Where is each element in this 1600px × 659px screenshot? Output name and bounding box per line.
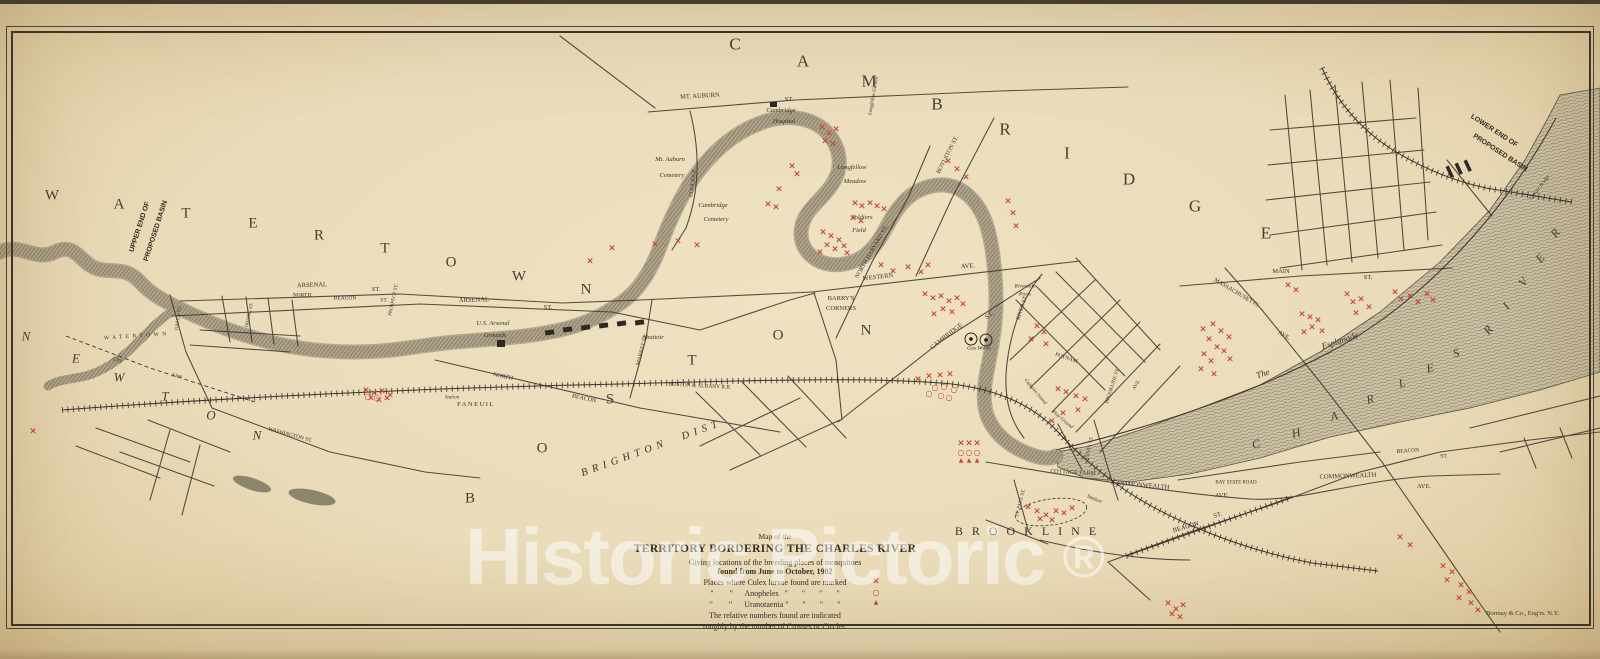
marker-cross: × — [1443, 577, 1451, 586]
legend-line-relative: The relative numbers found are indicated — [595, 611, 955, 620]
marker-cross: × — [829, 141, 837, 150]
legend-line-dates: found from June to October, 1902 — [595, 567, 955, 576]
marker-cross: × — [1308, 324, 1316, 333]
map-label: BOSTON & ALBANY R.R. — [668, 383, 731, 392]
marker-cross: × — [832, 126, 840, 135]
marker-cross: × — [944, 158, 952, 167]
map-label: AVE. — [1215, 493, 1229, 500]
district-letter: G — [1189, 198, 1201, 215]
marker-cross: × — [821, 138, 829, 147]
district-letter: E — [1425, 361, 1435, 374]
district-letter: H — [1290, 426, 1301, 440]
marker-cross: × — [1176, 614, 1184, 623]
legend-map-of-the: Map of the — [595, 533, 955, 542]
marker-cross: × — [383, 395, 391, 404]
district-letter: O — [773, 329, 784, 344]
map-label: Esplanade — [1321, 331, 1360, 351]
map-label: City — [112, 357, 122, 364]
marker-cross: × — [1209, 321, 1217, 330]
district-letter: O — [206, 409, 215, 422]
district-letter: T — [161, 390, 168, 403]
marker-cross: × — [1349, 299, 1357, 308]
map-label: AVE. — [961, 263, 976, 271]
marker-cross: × — [1004, 198, 1012, 207]
district-letter: I — [1064, 145, 1070, 162]
map-label: COMMONWEALTH — [1319, 473, 1376, 481]
historic-map-page: MT. AUBURNST.CambridgeHospitalMt. Auburn… — [0, 0, 1600, 659]
legend-line-anopheles: " " Anopheles " " " " — [595, 589, 955, 598]
district-letter: E — [1533, 251, 1547, 264]
marker-cross: × — [1074, 407, 1082, 416]
marker-cross: × — [1068, 505, 1076, 514]
district-letter: T — [181, 207, 190, 222]
marker-cross: × — [946, 371, 954, 380]
marker-cross: × — [1042, 341, 1050, 350]
marker-cross: × — [877, 262, 885, 271]
marker-cross: × — [936, 372, 944, 381]
marker-cross: × — [1060, 510, 1068, 519]
marker-circle: ○ — [958, 449, 965, 457]
map-label: Grounds — [484, 333, 507, 340]
map-label: Gas Works — [967, 346, 991, 352]
map-label: COMMONWEALTH — [1112, 480, 1169, 491]
district-letter: C — [729, 36, 740, 53]
map-label: BEACON — [571, 394, 596, 405]
marker-cross: × — [937, 293, 945, 302]
marker-cross: × — [819, 229, 827, 238]
marker-cross: × — [1179, 602, 1187, 611]
marker-cross: × — [823, 242, 831, 251]
marker-cross: × — [586, 258, 594, 267]
marker-cross: × — [775, 186, 783, 195]
marker-cross: × — [1352, 310, 1360, 319]
marker-cross: × — [1406, 293, 1414, 302]
map-label: ST. — [785, 97, 794, 104]
marker-cross: × — [925, 373, 933, 382]
district-letter: T — [380, 242, 389, 257]
map-label: Captains Island — [1023, 378, 1047, 406]
marker-cross: × — [953, 166, 961, 175]
marker-cross: × — [921, 291, 929, 300]
district-letter: M — [861, 73, 876, 90]
map-label: BAY STATE ROAD — [1215, 481, 1256, 486]
engraver-credit: Bormay & Co., Eng'rs. N.Y. — [1486, 610, 1559, 617]
district-letter: W — [512, 270, 526, 285]
map-label: The — [1255, 368, 1271, 381]
map-label: BEACON — [1397, 448, 1420, 455]
map-label: ST. — [544, 305, 553, 312]
map-label: Mt. Auburn — [655, 157, 685, 164]
district-letter: N — [581, 283, 592, 298]
map-label: Abattoir — [642, 335, 664, 342]
map-label: MT. AUBURN — [680, 93, 720, 102]
legend-circle-marker: ○ — [873, 589, 880, 597]
marker-cross: × — [1474, 607, 1482, 616]
map-label: MAIN — [1272, 269, 1289, 276]
marker-cross: × — [1292, 287, 1300, 296]
marker-cross: × — [1197, 366, 1205, 375]
district-letter: R — [999, 121, 1010, 138]
marker-cross: × — [1318, 328, 1326, 337]
map-label: LOWER END OF — [1469, 113, 1518, 149]
legend-line-roughly: roughly by the number of Crosses or Circ… — [595, 622, 955, 631]
marker-cross: × — [1199, 326, 1207, 335]
map-label: ARSENAL — [459, 297, 489, 305]
map-label: ST. — [1213, 512, 1223, 521]
map-label: Line — [172, 373, 183, 380]
marker-cross: × — [1397, 296, 1405, 305]
district-letter: O — [446, 256, 457, 271]
district-letter: I — [1500, 301, 1512, 312]
marker-cross: × — [764, 201, 772, 210]
map-label: BROOKLINE — [955, 525, 1105, 537]
map-label: Longfellow — [837, 165, 866, 172]
marker-cross: × — [880, 206, 888, 215]
district-letter: B — [931, 96, 942, 113]
marker-cross: × — [1298, 311, 1306, 320]
map-label: AVE. — [1132, 379, 1142, 391]
marker-cross: × — [1210, 371, 1218, 380]
legend-line-giving: Giving locations of the breeding places … — [595, 558, 955, 567]
marker-cross: × — [939, 306, 947, 315]
map-label: Hospital — [773, 119, 795, 126]
marker-cross: × — [1207, 358, 1215, 367]
marker-cross: × — [1048, 418, 1056, 427]
marker-cross: × — [1012, 223, 1020, 232]
map-label: Press — [1019, 292, 1031, 298]
marker-cross: × — [1406, 542, 1414, 551]
district-letter: R — [314, 229, 324, 244]
district-letter: S — [1452, 346, 1461, 359]
map-label: BEACON — [334, 296, 357, 302]
marker-cross: × — [930, 311, 938, 320]
map-label: RIVER ST. — [1016, 295, 1029, 321]
marker-cross: × — [849, 215, 857, 224]
map-label: ESSEX ST. — [1085, 436, 1095, 460]
marker-cross: × — [1205, 336, 1213, 345]
marker-cross: × — [1225, 334, 1233, 343]
marker-cross: × — [1300, 329, 1308, 338]
map-label: MASSACHUSETTS — [1213, 277, 1260, 308]
marker-cross: × — [608, 245, 616, 254]
marker-cross: × — [831, 246, 839, 255]
map-label: ST. — [985, 311, 996, 321]
map-label: NORTH — [293, 293, 312, 299]
marker-cross: × — [772, 204, 780, 213]
marker-circle: ○ — [941, 383, 948, 391]
map-label: CAMBRIDGE — [930, 322, 965, 351]
marker-cross: × — [1024, 504, 1032, 513]
map-label: Cambridge — [698, 203, 727, 210]
scan-top-edge — [0, 0, 1600, 4]
marker-cross: × — [1414, 299, 1422, 308]
map-label: ST. — [380, 298, 387, 304]
district-letter: W — [45, 189, 59, 204]
marker-cross: × — [693, 242, 701, 251]
legend-line-uranotaenia: " " Uranotaenia " " " " — [595, 600, 955, 609]
map-label: WASHINGTON ST. — [267, 427, 312, 444]
marker-triangle: ▲ — [967, 458, 972, 464]
map-label: BRIGHTON DIST — [580, 419, 724, 480]
district-letter: R — [1365, 392, 1375, 405]
map-label: Station — [445, 396, 459, 401]
marker-cross: × — [793, 171, 801, 180]
marker-cross: × — [1455, 595, 1463, 604]
scan-bottom-edge — [0, 649, 1600, 659]
map-label: AVE. — [1277, 330, 1291, 342]
marker-circle: ○ — [974, 449, 981, 457]
marker-cross: × — [651, 241, 659, 250]
marker-circle: ○ — [938, 392, 945, 400]
marker-cross: × — [889, 268, 897, 277]
marker-cross: × — [1439, 563, 1447, 572]
marker-cross: × — [1027, 336, 1035, 345]
marker-cross: × — [948, 309, 956, 318]
legend-triangle-marker: ▲ — [874, 600, 879, 606]
district-letter: V — [1516, 275, 1530, 288]
district-letter: E — [248, 217, 257, 232]
district-letter: A — [1329, 409, 1339, 422]
map-label: Riverside — [1015, 284, 1036, 290]
marker-cross: × — [962, 174, 970, 183]
marker-cross: × — [1357, 296, 1365, 305]
marker-circle: ○ — [926, 390, 933, 398]
marker-cross: × — [1226, 356, 1234, 365]
marker-cross: × — [1081, 396, 1089, 405]
map-label: ST. — [1440, 454, 1447, 460]
map-label: Craigie Bridge — [1529, 175, 1551, 202]
marker-cross: × — [914, 376, 922, 385]
district-letter: E — [72, 352, 80, 365]
district-letter: O — [537, 442, 548, 457]
district-letter: T — [687, 354, 696, 369]
map-label: Field — [852, 228, 866, 235]
marker-circle: ○ — [365, 393, 372, 401]
marker-cross: × — [1009, 210, 1017, 219]
marker-cross: × — [904, 264, 912, 273]
map-label: GALEN ST. — [175, 305, 183, 330]
map-label: Cemetery — [704, 217, 729, 224]
marker-cross: × — [929, 295, 937, 304]
district-letter: B — [465, 492, 475, 507]
marker-cross: × — [1054, 386, 1062, 395]
marker-cross: × — [858, 203, 866, 212]
marker-cross: × — [29, 428, 37, 437]
marker-cross: × — [674, 238, 682, 247]
map-label: Cemetery — [660, 173, 685, 180]
district-letter: N — [861, 324, 872, 339]
map-label: COOLIDGE — [690, 169, 699, 198]
marker-cross: × — [1465, 589, 1473, 598]
marker-cross: × — [1217, 328, 1225, 337]
marker-cross: × — [843, 250, 851, 259]
map-label: COTTAGE FARM — [1050, 469, 1096, 477]
map-label: BROOKLINE ST. — [1105, 368, 1121, 405]
map-label: FANEUIL — [457, 402, 495, 409]
map-label: ST. — [1364, 275, 1373, 282]
marker-cross: × — [924, 262, 932, 271]
marker-cross: × — [1040, 329, 1048, 338]
marker-cross: × — [1429, 297, 1437, 306]
map-label: BARRY'S — [828, 296, 855, 303]
marker-cross: × — [1168, 611, 1176, 620]
district-letter: C — [1251, 437, 1262, 451]
map-label: Meadow — [844, 179, 866, 186]
district-letter: W — [114, 371, 125, 384]
marker-cross: × — [1306, 314, 1314, 323]
map-label: WATERTOWN — [104, 332, 170, 342]
marker-cross: × — [1062, 389, 1070, 398]
map-label: BEACON — [1172, 521, 1199, 535]
marker-cross: × — [1284, 282, 1292, 291]
marker-cross: × — [1036, 516, 1044, 525]
marker-cross: × — [857, 218, 865, 227]
marker-circle: ○ — [966, 449, 973, 457]
legend-cross-marker: × — [872, 578, 880, 587]
district-letter: A — [797, 53, 809, 70]
map-label: ARSENAL — [297, 282, 327, 290]
map-legend: Map of the TERRITORY BORDERING THE CHARL… — [595, 533, 955, 631]
map-label: IRVING ST. — [245, 302, 255, 328]
marker-circle: ○ — [946, 394, 953, 402]
marker-triangle: ▲ — [975, 458, 980, 464]
district-letter: A — [114, 198, 125, 213]
district-letter: D — [1123, 171, 1135, 188]
marker-circle: ○ — [374, 394, 381, 402]
marker-cross: × — [1365, 304, 1373, 313]
map-label: AVE. — [1417, 484, 1431, 491]
district-letter: S — [606, 393, 614, 408]
map-label: CORNERS — [826, 306, 856, 313]
map-label: PUTNAM — [1054, 353, 1078, 365]
marker-cross: × — [816, 249, 824, 258]
marker-cross: × — [1059, 410, 1067, 419]
district-letter: R — [1548, 226, 1562, 239]
map-label: Cambridge — [766, 108, 795, 115]
district-letter: N — [253, 429, 262, 442]
district-letter: L — [1397, 376, 1407, 389]
marker-triangle: ▲ — [959, 458, 964, 464]
legend-line-culex: Places where Culex larvae found are mark… — [595, 578, 955, 587]
map-title: TERRITORY BORDERING THE CHARLES RIVER — [595, 543, 955, 557]
marker-cross: × — [1164, 600, 1172, 609]
district-letter: N — [22, 330, 31, 343]
map-label: U.S. Arsenal — [477, 321, 510, 328]
marker-cross: × — [1072, 393, 1080, 402]
marker-cross: × — [1457, 582, 1465, 591]
map-label: ST. — [372, 287, 381, 294]
marker-cross: × — [1048, 517, 1056, 526]
marker-cross: × — [1396, 534, 1404, 543]
map-label: NORTH — [492, 372, 513, 382]
marker-cross: × — [959, 301, 967, 310]
map-label: PROSPECT ST. — [388, 284, 400, 317]
district-letter: R — [1481, 323, 1495, 336]
map-label: Station — [1086, 495, 1103, 506]
district-letter: E — [1261, 225, 1271, 242]
